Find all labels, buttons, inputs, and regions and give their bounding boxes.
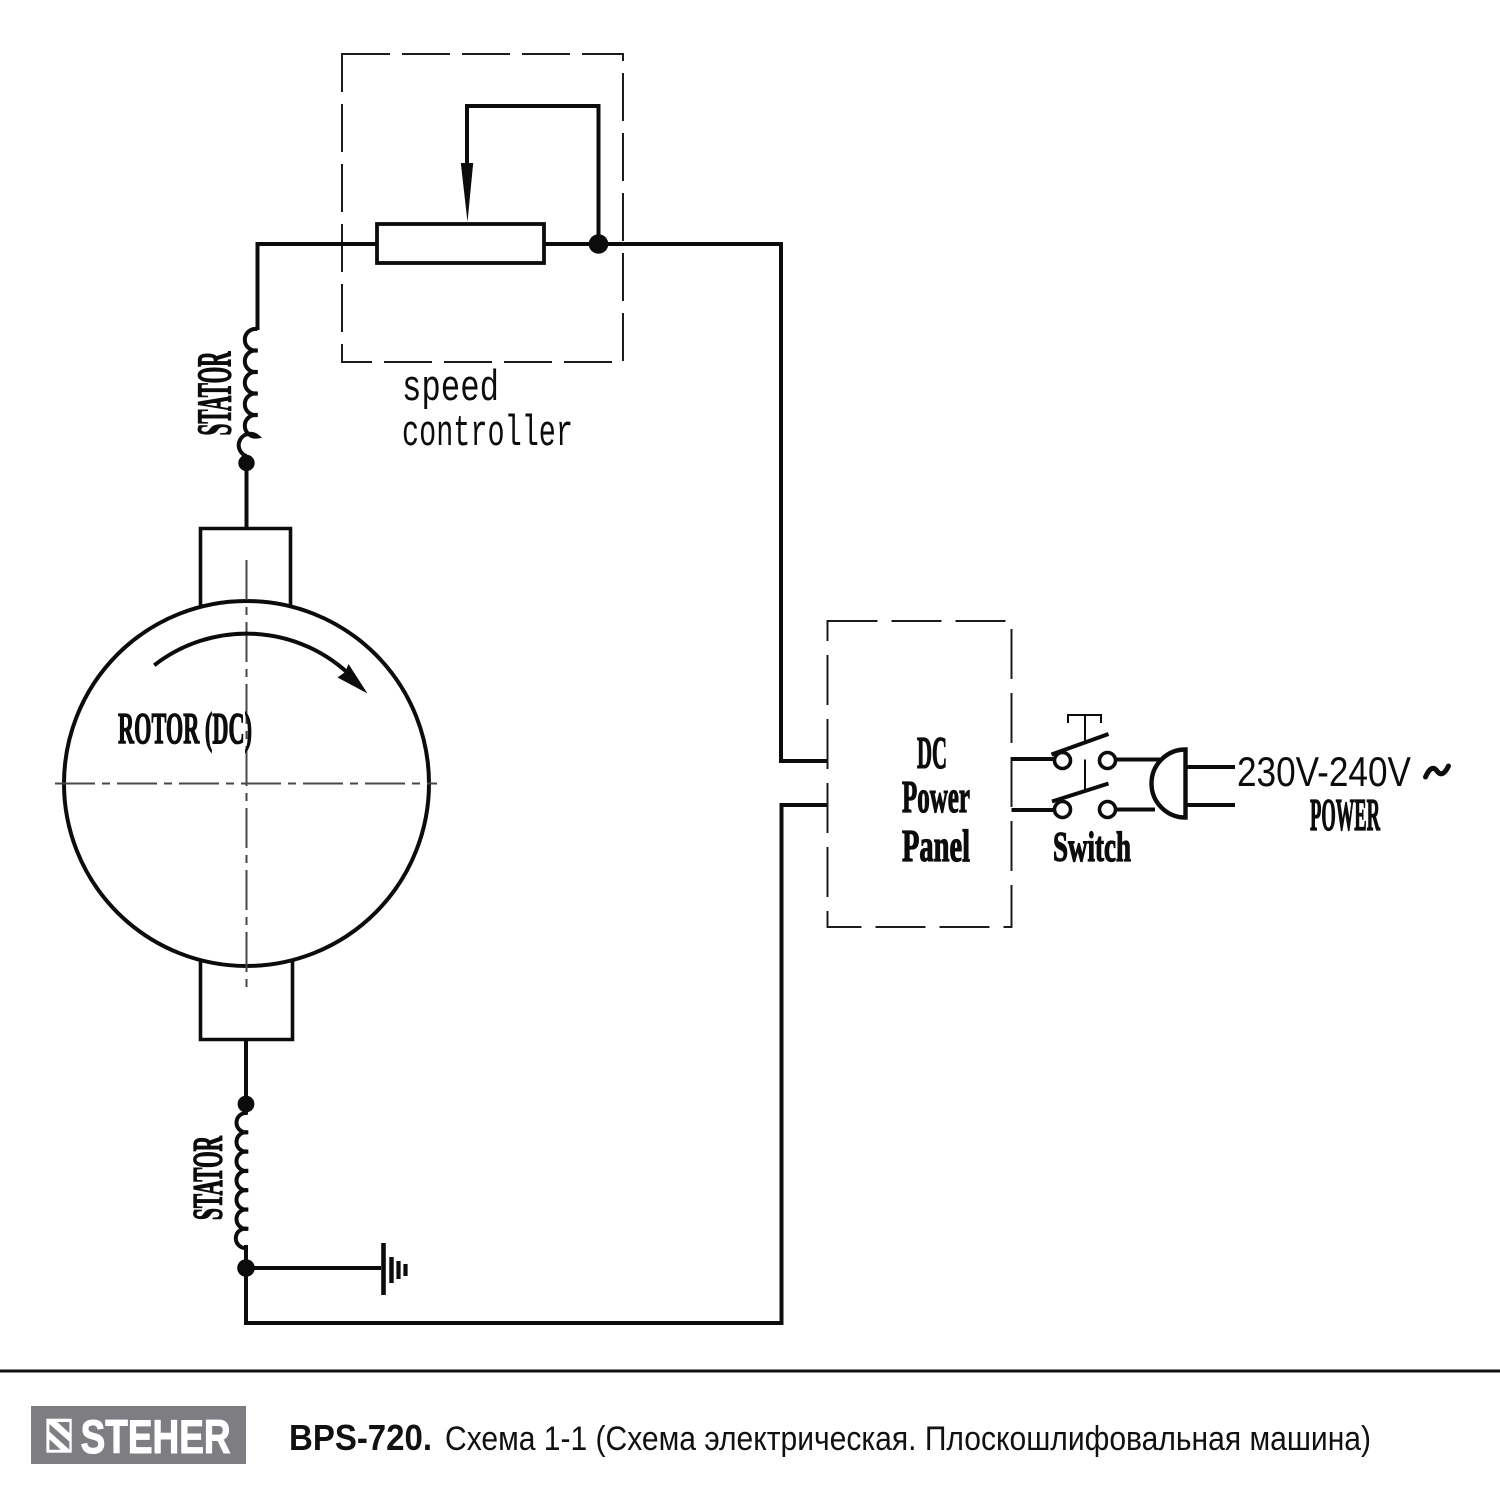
svg-text:POWER: POWER xyxy=(1310,790,1380,840)
svg-text:STATOR: STATOR xyxy=(186,1136,232,1220)
svg-text:DC: DC xyxy=(917,728,947,778)
svg-text:Схема 1-1 (Схема электрическая: Схема 1-1 (Схема электрическая. Плоскошл… xyxy=(445,1420,1371,1458)
svg-text:STEHER: STEHER xyxy=(81,1410,231,1463)
svg-text:Switch: Switch xyxy=(1053,825,1131,871)
svg-text:Panel: Panel xyxy=(902,821,970,871)
svg-text:controller: controller xyxy=(402,409,573,459)
svg-text:STATOR: STATOR xyxy=(188,351,242,435)
svg-text:230V-240V: 230V-240V xyxy=(1237,748,1411,795)
svg-text:speed: speed xyxy=(402,364,499,414)
svg-text:BPS-720.: BPS-720. xyxy=(289,1417,432,1458)
svg-text:Power: Power xyxy=(902,772,970,822)
svg-text:ROTOR (DC): ROTOR (DC) xyxy=(118,704,252,753)
